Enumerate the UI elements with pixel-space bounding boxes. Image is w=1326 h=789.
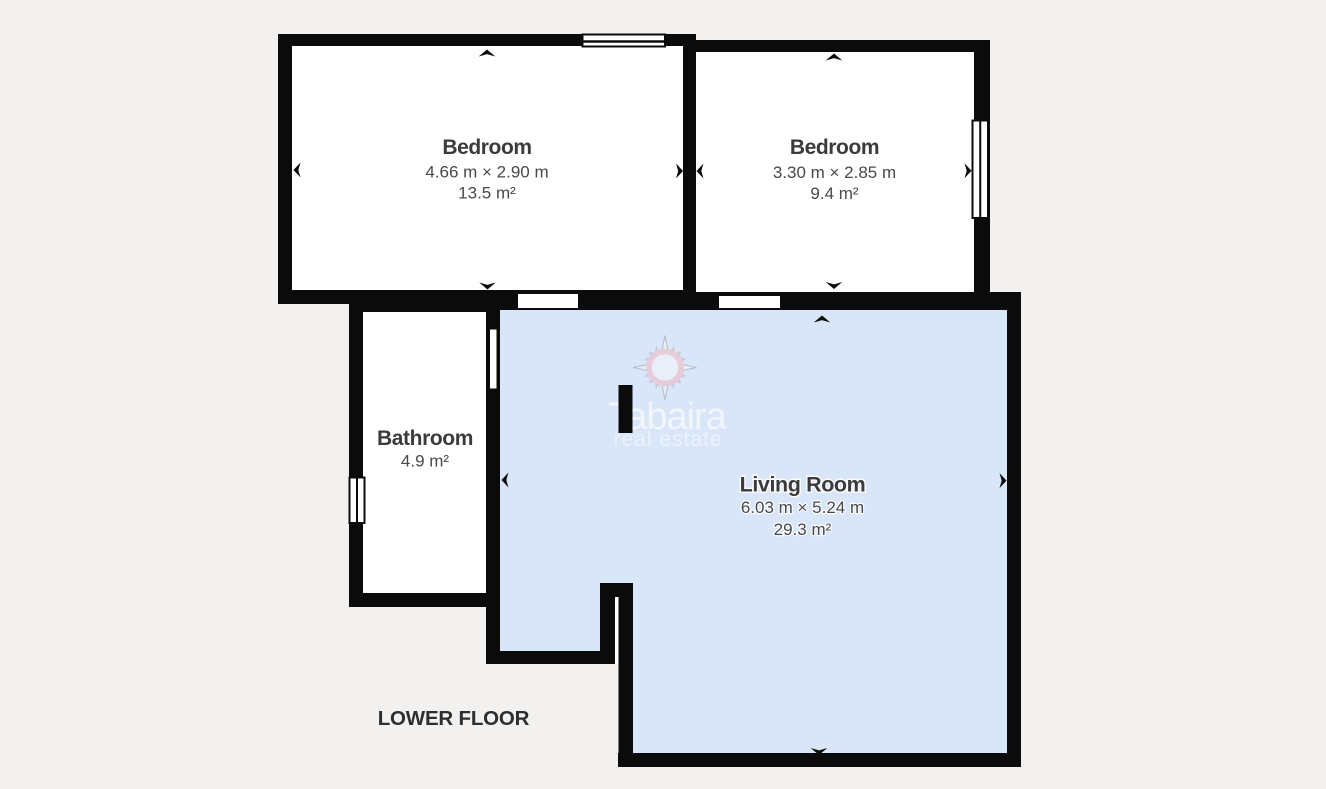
svg-text:Bedroom: Bedroom <box>442 136 531 159</box>
svg-text:13.5 m²: 13.5 m² <box>458 184 516 203</box>
svg-text:Living Room: Living Room <box>740 473 866 497</box>
svg-text:Bathroom: Bathroom <box>377 427 473 450</box>
svg-text:9.4 m²: 9.4 m² <box>810 184 859 203</box>
svg-text:4.9 m²: 4.9 m² <box>401 452 450 471</box>
svg-text:Bedroom: Bedroom <box>790 136 879 159</box>
svg-text:29.3 m²: 29.3 m² <box>774 520 832 539</box>
svg-text:3.30 m × 2.85 m: 3.30 m × 2.85 m <box>773 163 896 182</box>
svg-text:LOWER FLOOR: LOWER FLOOR <box>378 707 530 730</box>
svg-text:4.66 m × 2.90 m: 4.66 m × 2.90 m <box>425 163 548 182</box>
svg-text:6.03 m × 5.24 m: 6.03 m × 5.24 m <box>741 498 864 517</box>
